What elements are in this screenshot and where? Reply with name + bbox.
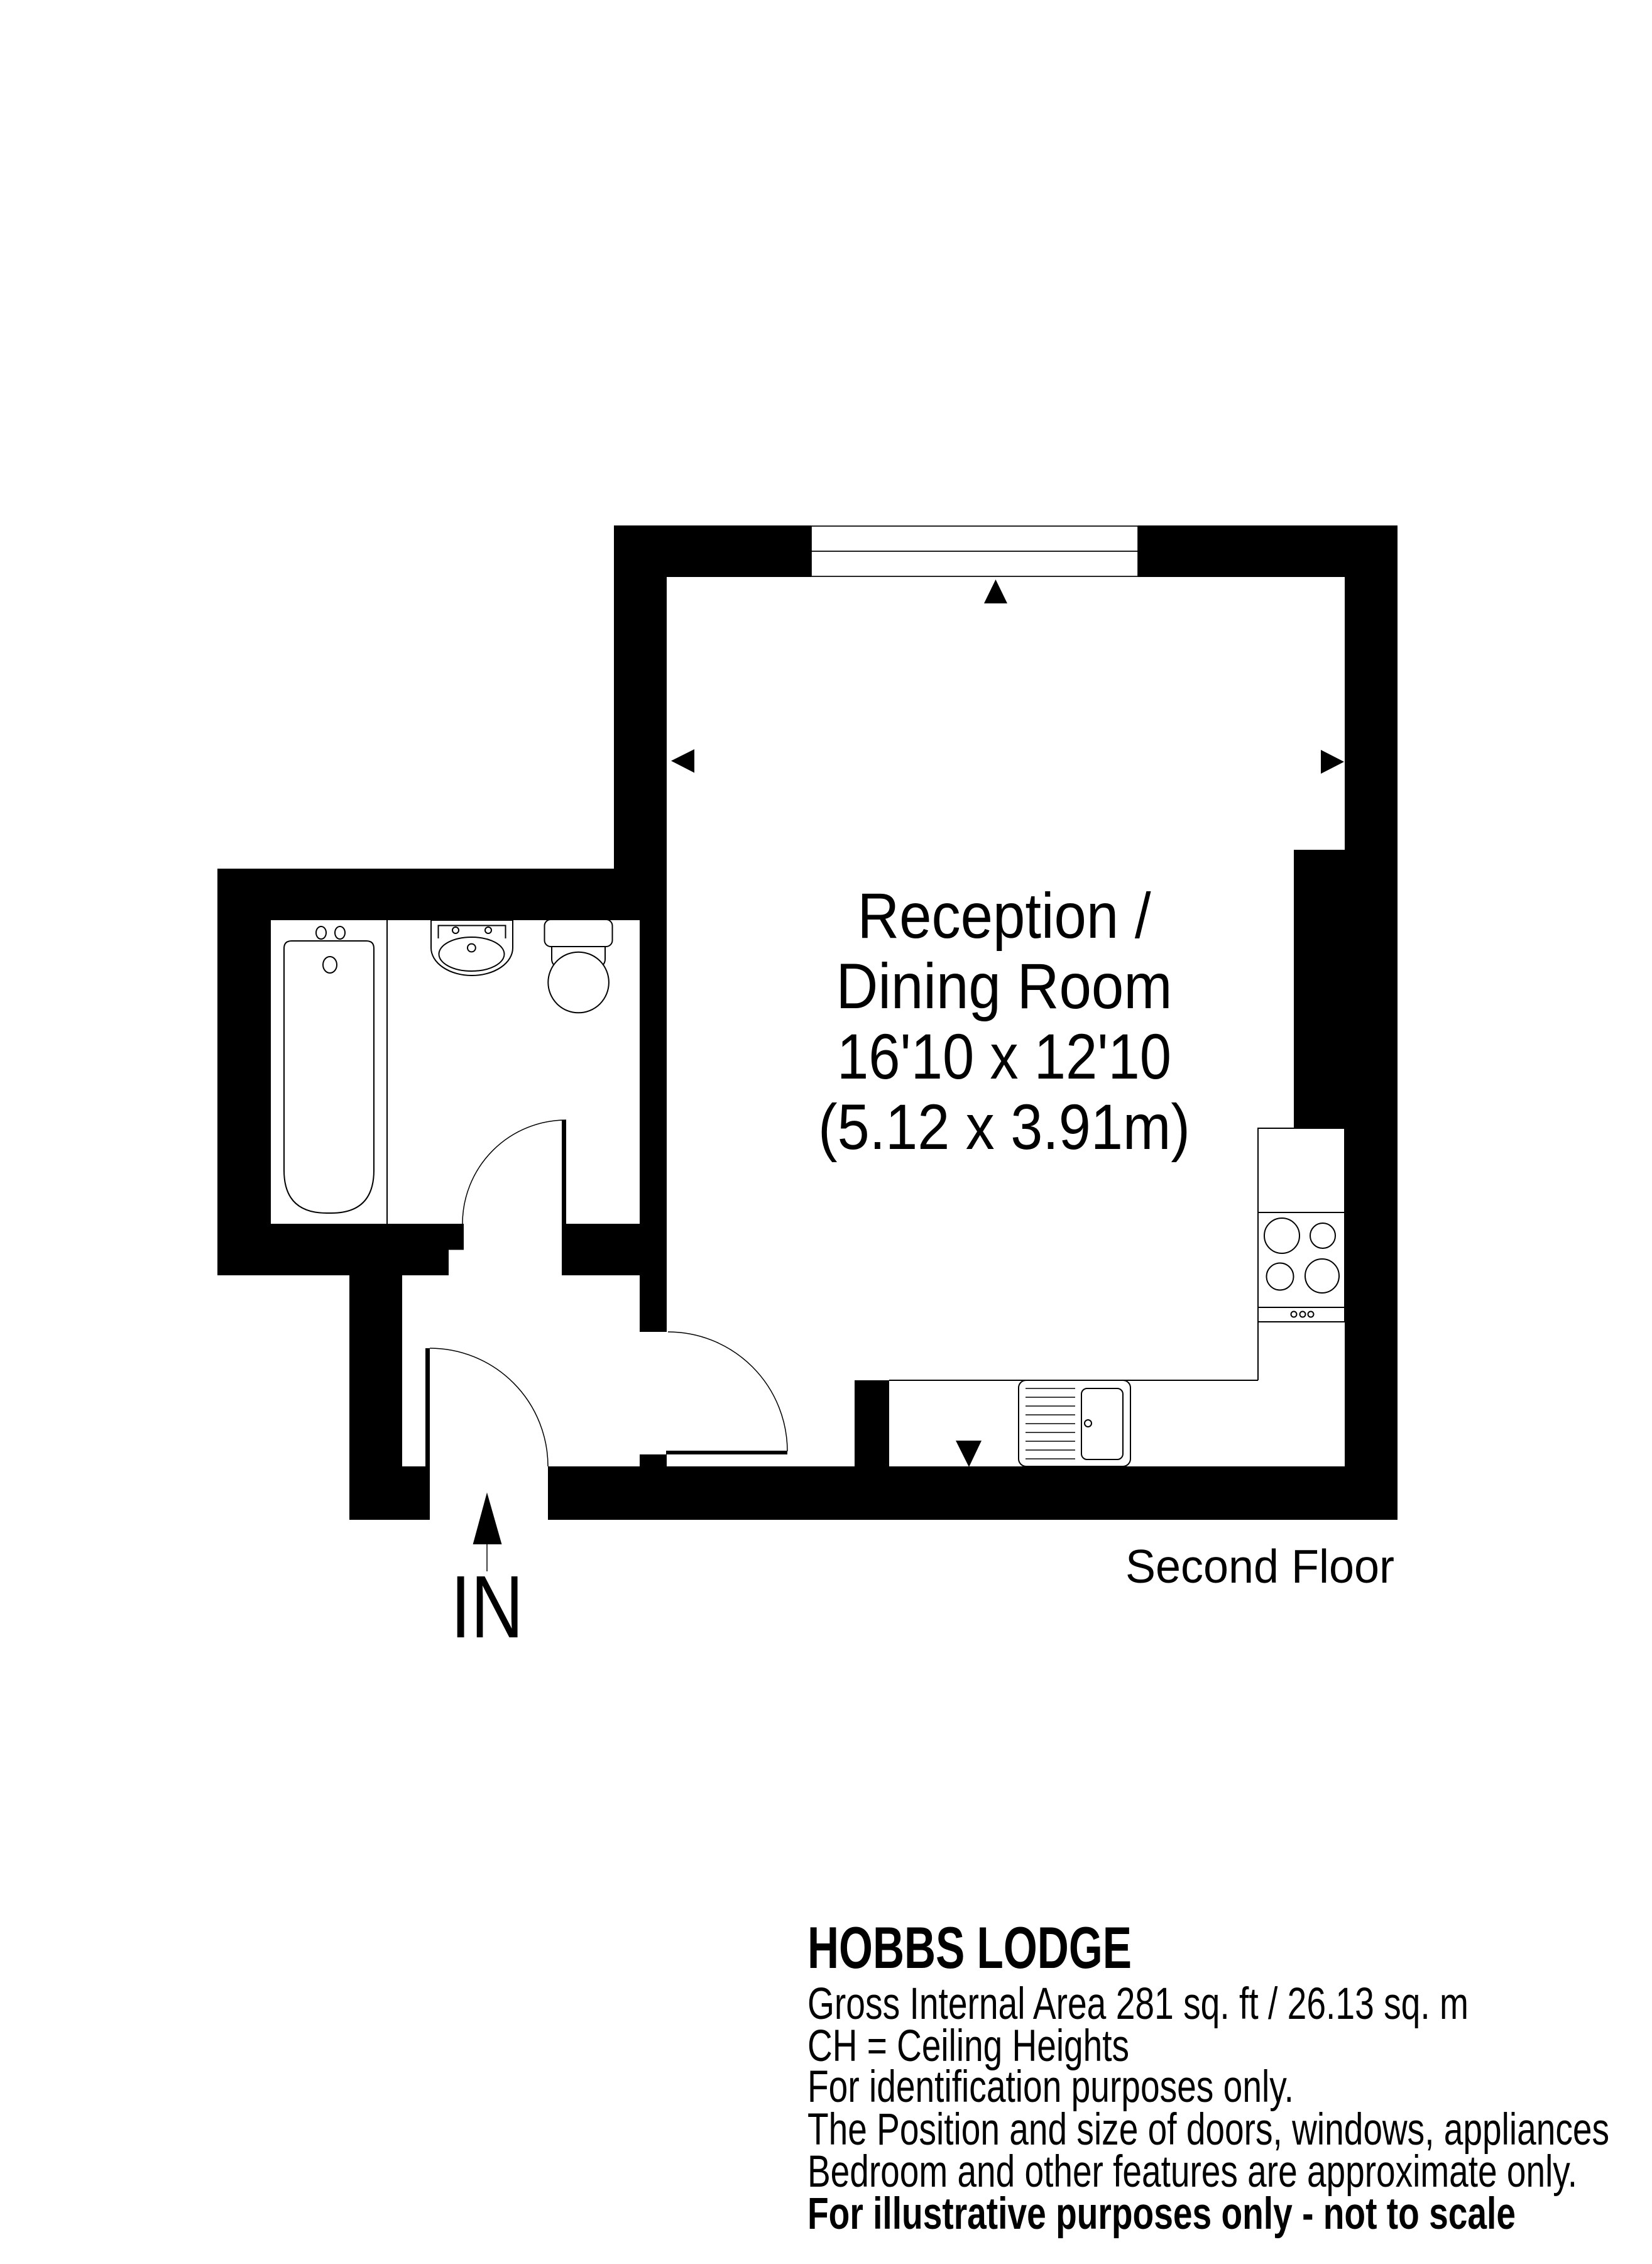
svg-text:Second Floor: Second Floor [1125,1540,1394,1593]
svg-text:16'10 x 12'10: 16'10 x 12'10 [837,1021,1171,1092]
svg-text:IN: IN [451,1557,523,1656]
svg-text:HOBBS LODGE: HOBBS LODGE [807,1915,1132,1981]
svg-text:Dining Room: Dining Room [836,950,1173,1022]
svg-text:Reception /: Reception / [858,880,1152,952]
svg-text:(5.12 x 3.91m): (5.12 x 3.91m) [818,1091,1190,1163]
svg-text:For illustrative purposes only: For illustrative purposes only - not to … [807,2189,1516,2239]
